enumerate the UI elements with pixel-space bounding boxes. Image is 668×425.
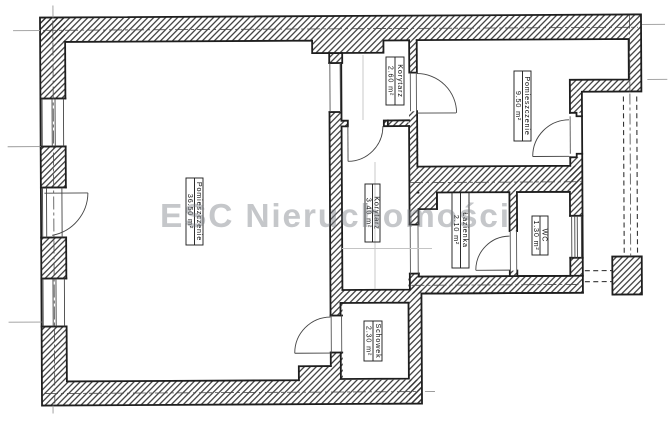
- svg-text:Schowek: Schowek: [374, 323, 383, 358]
- svg-text:2.30 m²: 2.30 m²: [365, 326, 374, 356]
- svg-text:Korytarz: Korytarz: [396, 64, 405, 98]
- svg-text:1.30 m²: 1.30 m²: [532, 220, 541, 250]
- svg-text:2.60 m²: 2.60 m²: [387, 66, 396, 96]
- svg-text:ESC Nieruchomości: ESC Nieruchomości: [160, 198, 511, 235]
- svg-text:9.50 m²: 9.50 m²: [514, 91, 523, 121]
- svg-text:Pomieszczenie: Pomieszczenie: [523, 76, 532, 135]
